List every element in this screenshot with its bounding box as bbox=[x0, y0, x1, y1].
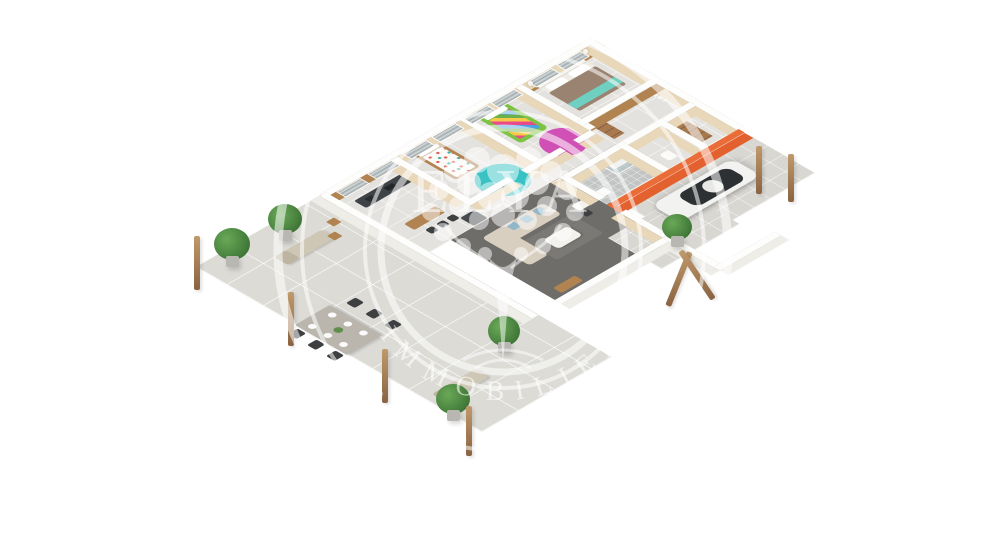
table-centerpiece bbox=[331, 326, 345, 334]
pergola-post bbox=[288, 292, 294, 346]
plant-pot bbox=[279, 230, 292, 241]
potted-plant bbox=[268, 204, 302, 241]
carport-post bbox=[788, 154, 794, 202]
place-setting bbox=[322, 332, 334, 339]
plant-pot bbox=[226, 256, 239, 267]
plant-pot bbox=[671, 236, 684, 247]
place-setting bbox=[306, 323, 318, 330]
patio-wall-top bbox=[714, 232, 781, 271]
plant-pot bbox=[498, 342, 511, 353]
bedside-lamp bbox=[583, 49, 588, 54]
pergola-post bbox=[194, 236, 200, 290]
place-setting bbox=[337, 341, 349, 348]
potted-plant bbox=[214, 228, 250, 267]
pergola-post bbox=[382, 349, 388, 403]
potted-plant bbox=[436, 384, 470, 421]
floor-plan-render: ELYA IMMOBILIER IMMOBILIER bbox=[0, 0, 1000, 536]
bedside-lamp bbox=[528, 81, 533, 86]
kitchen-hob bbox=[383, 183, 397, 191]
place-setting bbox=[342, 321, 354, 328]
potted-plant bbox=[488, 316, 520, 353]
carport-post bbox=[756, 146, 762, 194]
kitchen-sink bbox=[364, 195, 376, 202]
place-setting bbox=[326, 312, 338, 319]
plant-pot bbox=[447, 410, 460, 421]
pergola-post bbox=[466, 406, 472, 456]
place-setting bbox=[357, 330, 369, 337]
patio-wall-face bbox=[720, 235, 789, 275]
potted-palm bbox=[662, 214, 692, 247]
